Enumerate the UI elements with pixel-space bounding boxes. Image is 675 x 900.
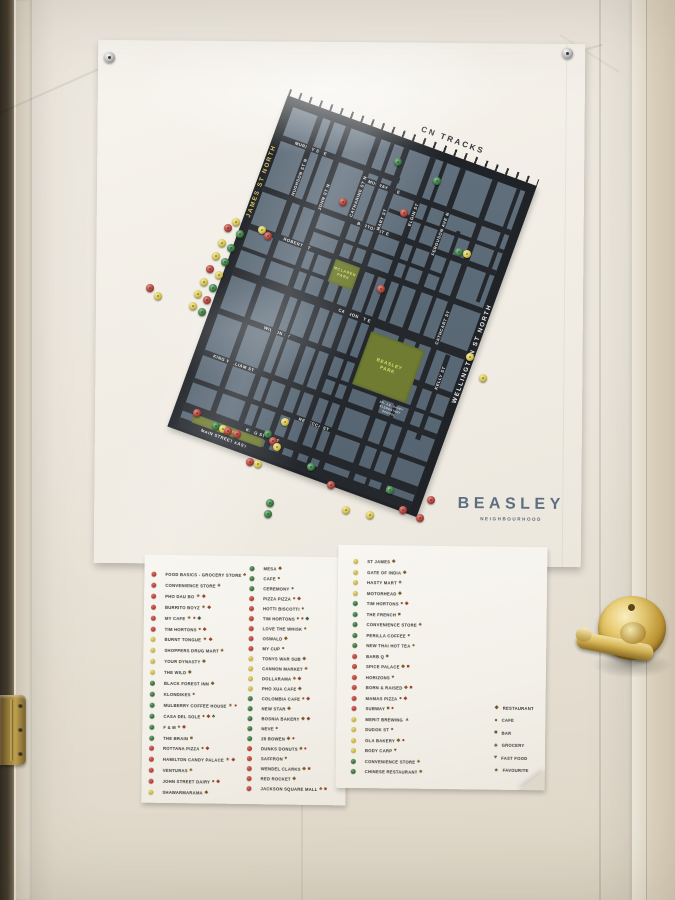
door-panel-line [599,0,601,900]
legend-dot [247,766,252,771]
legend-item: ROTTANA PIZZA●◆ [149,746,209,752]
legend-dot [247,756,252,761]
legend-item: PHO DAU BO★◆ [151,593,206,599]
photo-of-door-with-map: { "poster": { "title": "BEASLEY", "subti… [0,0,675,900]
thumbtack-right [562,48,573,59]
legend-item: MESA◆ [250,566,283,571]
legend-item-icon: ◆ [297,677,301,682]
legend-item-label: TIM HORTONS [165,626,197,631]
legend-item-icon: ◆ [182,725,186,730]
legend-dot [353,580,358,585]
legend-item-label: HOTTI BISCOTTI [263,606,300,612]
poster-title: BEASLEY [446,495,576,514]
legend-item-icon: ♣ [212,714,215,719]
legend-item-label: ST JAMES [367,559,390,564]
legend-key-item: ♣GROCERY [494,742,524,748]
legend-item: ST JAMES◆ [353,559,395,565]
street-name: MARY ST [375,208,388,231]
legend-item: CONVENIENCE STORE♣ [351,758,420,764]
legend-dot [246,786,251,791]
legend-dot [247,746,252,751]
legend-key-label: GROCERY [502,743,525,748]
legend-key-label: FAVOURITE [503,768,529,773]
legend-item-label: MULBERRY COFFEE HOUSE [164,703,227,709]
legend-dot [150,692,155,697]
legend-item-icon: ◆ [403,570,407,575]
legend-item-icon: ● [304,747,307,752]
legend-item: TIM HORTONS●◆ [151,626,207,632]
legend-item-icon: ● [234,704,237,709]
legend-dot [352,674,357,679]
legend-item: CONVENIENCE STORE♣ [151,583,220,589]
legend-item-icon: ◆ [204,790,208,795]
street-name: KELLY ST [433,365,446,390]
legend-item-label: ROTTANA PIZZA [163,746,200,752]
legend-item-icon: ◆ [278,566,282,571]
legend-item-label: JACKSON SQUARE MALL [260,786,317,792]
legend-item-label: THE FRENCH [367,612,397,617]
legend-item-icon: ◆ [284,637,288,642]
legend-key-item: ★FAVOURITE [494,767,529,773]
legend-item-icon: ● [302,697,305,702]
hinge-screw [18,703,23,708]
legend-dot [150,702,155,707]
legend-item-label: PHO XUA CAFE [262,686,297,691]
legend-item-icon: ◆ [302,767,306,772]
legend-item: SUBWAY■● [351,706,394,712]
legend-dot [351,737,356,742]
legend-key-label: BAR [502,730,512,735]
legend-item-label: SHAWARMARAMA [162,790,203,796]
legend-dot [250,566,255,571]
legend-item: YOUR DYNASTY◆ [150,659,206,665]
legend-item-label: MESA [264,566,277,571]
legend-item-icon: ● [291,587,294,592]
legend-item: LOVE THE WHISK● [249,626,307,632]
legend-item-label: OLA BAKERY [365,738,395,743]
legend-item-icon: ◆ [305,617,309,622]
legend-item-icon: ● [399,696,402,701]
legend-item-label: TONYS WAR SUB [262,656,301,662]
legend-item: NEVE● [247,726,278,731]
legend-item-icon: ● [407,633,410,638]
legend-item-icon: ◆ [203,627,207,632]
legend-item: HOTTI BISCOTTI● [249,606,304,612]
legend-item: BOSNIA BAKERY◆◆ [247,716,310,722]
street-name: CATHCART ST [433,309,450,345]
legend-item-icon: ♥ [284,757,287,762]
legend-item-label: THE WILD [164,670,186,675]
legend-item-icon: ♣ [304,667,307,672]
legend-item: THE WILD◆ [150,670,192,676]
legend-item-label: THE BRAIN [163,735,188,740]
legend-dot [353,569,358,574]
legend-item-icon: ♣ [217,583,220,588]
hinge-screw [18,727,23,732]
legend-item-label: SUBWAY [365,706,385,711]
legend-item: MY CAFE★●◆ [151,615,201,621]
legend-item-label: COLOMBIA CAFE [262,696,301,702]
legend-item-icon: ■ [324,787,327,792]
legend-dot [150,659,155,664]
poster-subtitle: NEIGHBOURHOOD [446,516,576,522]
legend-item-icon: ♣ [293,677,296,682]
legend-dot [352,632,357,637]
legend-item-label: NEW THAI HOT TEA [366,643,410,649]
legend-item-label: BARB Q [366,654,384,659]
legend-sheet-right: ST JAMES◆GATE OF INDIA◆HASTY MART♣MOTORH… [336,545,548,791]
legend-item-label: GATE OF INDIA [367,570,401,575]
legend-dot [247,726,252,731]
legend-item-label: WENDEL CLARKS [261,766,301,772]
legend-item-icon: ● [391,727,394,732]
door-hinge [0,695,26,765]
legend-item: MULBERRY COFFEE HOUSE★● [150,702,238,708]
street-vertical: ELGIN ST [316,157,436,473]
legend-item-label: BOSNIA BAKERY [261,716,299,722]
legend-key-icon: ♥ [494,755,497,761]
legend-dot [353,601,358,606]
legend-item-icon: ● [202,714,205,719]
legend-item-icon: ★ [196,594,201,599]
legend-dot [247,776,252,781]
legend-item-icon: ◆ [401,665,405,670]
legend-item: SAFFRON♥ [247,756,288,762]
legend-item-icon: ● [304,627,307,632]
legend-item-label: RED ROCKET [261,776,291,781]
legend-dot [249,616,254,621]
legend-dot [151,615,156,620]
legend-item-icon: ◆ [298,687,302,692]
legend-item: CHINESE RESTAURANT■ [351,769,422,775]
legend-item-icon: ♣ [220,649,223,654]
legend-dot [249,606,254,611]
legend-item-icon: ● [177,725,180,730]
legend-item-label: HASTY MART [367,580,397,585]
legend-item: OSWALD◆ [249,636,288,642]
legend-item: TIM HORTONS●●◆ [249,616,309,622]
legend-item: BODY CARP♥ [351,748,397,754]
door-right-stile [632,0,646,900]
legend-item: PIZZA PIZZA●◆ [249,596,301,602]
legend-item-icon: ◆ [206,714,210,719]
street-name: ELGIN ST [406,202,419,226]
legend-item: 28 BOWEN◆● [247,736,295,742]
legend-item-icon: ■ [406,665,409,670]
legend-item: BORN & RAISED◆■ [352,685,413,691]
legend-item-icon: ◆ [188,670,192,675]
legend-item-label: CONVENIENCE STORE [165,583,216,589]
legend-item-icon: ◆ [302,657,306,662]
legend-item-icon: ■ [308,767,311,772]
handle-screw [628,604,635,611]
thumbtack-left [104,52,115,63]
legend-item: CONVENIENCE STORE♣ [352,622,421,628]
legend-dot [149,735,154,740]
legend-item-icon: ◆ [403,696,407,701]
legend-key-item: ♥FAST FOOD [494,755,528,761]
legend-key-icon: ◆ [494,705,498,711]
legend-item-icon: ◆ [231,758,235,763]
legend-item-label: OSWALD [263,636,283,641]
legend-item-label: CHINESE RESTAURANT [365,769,418,775]
legend-item: HASTY MART♣ [353,580,402,586]
legend-item-label: MY CUP [262,646,280,651]
legend-item: NEW STAR◆ [248,706,291,712]
legend-item-icon: ♣ [398,580,401,585]
street-name: JOHN ST N [316,183,330,211]
legend-dot [248,676,253,681]
legend-item-icon: ◆ [306,717,310,722]
legend-dot [249,636,254,641]
street-vertical: CATHARINE ST N [262,137,382,453]
legend-item-label: YOUR DYNASTY [164,659,200,665]
legend-dot [351,748,356,753]
legend-item-icon: ■ [398,612,401,617]
legend-dot [248,666,253,671]
legend-item-icon: ★ [228,704,233,709]
legend-dot [151,583,156,588]
legend-item: SHAWARMARAMA◆ [148,790,208,796]
legend-dot [249,596,254,601]
legend-item-label: BURNT TONGUE [165,637,202,643]
legend-sheet-left: FOOD BASICS - GROCERY STORE♣CONVENIENCE … [141,555,348,806]
legend-item-icon: ■ [419,770,422,775]
legend-dot [151,572,156,577]
legend-item-icon: ◆ [292,777,296,782]
legend-item-label: KLONDIKES [164,692,191,697]
legend-item-label: BURRITO BOYZ [165,605,200,610]
legend-item: KLONDIKES● [150,692,196,698]
legend-dot [151,604,156,609]
legend-item-icon: ● [275,726,278,731]
legend-dot [249,626,254,631]
legend-key-icon: ★ [494,767,499,773]
legend-item: CASA DEL SOLE●◆♣ [149,713,215,719]
legend-item-label: HAMILTON CANDY PALACE [163,757,224,763]
legend-dot [149,757,154,762]
street-vertical: KELLY ST [415,354,450,440]
legend-item-label: DUNKS DONUTS [261,746,298,752]
legend-key-label: CAFE [502,718,514,723]
legend-item-label: LOVE THE WHISK [263,626,303,632]
legend-item-icon: ♥ [391,675,394,680]
legend-item-icon: ◆ [197,616,201,621]
legend-item: OLA BAKERY◆● [351,737,405,743]
legend-item: COLOMBIA CAFE●◆ [248,696,310,702]
legend-item-icon: ♣ [189,768,192,773]
legend-item-icon: ● [293,597,296,602]
legend-item-icon: ● [292,737,295,742]
legend-dot [249,576,254,581]
legend-dot [149,713,154,718]
legend-dot [353,590,358,595]
legend-item-icon: ◆ [301,717,305,722]
legend-item-icon: ★ [201,605,206,610]
legend-item-icon: ◆ [404,686,408,691]
legend-dot [151,626,156,631]
legend-item: BURRITO BOYZ★◆ [151,604,211,610]
legend-item-icon: ● [282,647,285,652]
legend-item-label: F & M [163,724,176,729]
legend-item-label: SPICE PALACE [366,664,400,669]
legend-dot [351,769,356,774]
legend-item: TIM HORTONS●◆ [353,601,409,607]
legend-item-icon: ● [391,706,394,711]
legend-dot [351,706,356,711]
legend-item-label: JOHN STREET DAIRY [163,779,211,785]
legend-dot [151,637,156,642]
legend-item: RED ROCKET◆ [247,776,297,782]
legend-item-label: MERIT BREWING [365,717,403,722]
legend-item: CANNON MARKET♣ [248,666,308,672]
map-inner: MURRAY ST EMURRAY ST EBARTON ST EROBERT … [179,107,525,505]
legend-dot [149,746,154,751]
legend-item: CAFE● [249,576,280,581]
legend-item-icon: ◆ [211,682,215,687]
legend-item-label: PIZZA PIZZA [263,596,291,601]
legend-item: F & M●◆ [149,724,186,730]
legend-dot [248,686,253,691]
legend-item-icon: ● [193,616,196,621]
legend-dot [351,716,356,721]
legend-dot [149,724,154,729]
legend-item-icon: ◆ [306,697,310,702]
legend-item: MOTORHEAD◆ [353,590,402,596]
plastic-sleeve-edge [562,44,568,567]
legend-item-label: 28 BOWEN [261,736,285,741]
legend-dot [150,648,155,653]
legend-item-icon: ■ [386,654,389,659]
legend-item-label: MOTORHEAD [367,591,397,596]
legend-item-icon: ● [301,617,304,622]
legend-item: MY CUP● [248,646,284,652]
legend-item-icon: ★ [225,758,230,763]
legend-dot [353,559,358,564]
legend-dot [351,727,356,732]
legend-dot [247,716,252,721]
legend-item: GATE OF INDIA◆ [353,569,407,575]
legend-item: TONYS WAR SUB◆ [248,656,306,662]
legend-item-icon: ■ [386,706,389,711]
legend-item-icon: ● [201,747,204,752]
legend-item-label: BLACK FOREST INN [164,681,209,687]
legend-item-label: DOLLARAMA [262,676,291,681]
legend-item-label: NEW STAR [262,706,286,711]
legend-item: CEREMONY● [249,586,294,592]
legend-item: SPICE PALACE◆■ [352,664,410,670]
legend-item: PHO XUA CAFE◆ [248,686,302,692]
legend-item-label: MY CAFE [165,615,186,620]
legend-item-icon: ♥ [394,748,397,753]
legend-item: PERILLA COFFEE● [352,632,410,638]
door-frame-gap [0,0,14,900]
legend-dot [247,736,252,741]
legend-dot [352,643,357,648]
legend-dot [352,685,357,690]
legend-item-icon: ▲ [405,717,410,722]
legend-key-icon: ● [494,717,497,723]
legend-dot [248,706,253,711]
legend-dot [150,670,155,675]
hinge-screw [18,751,23,756]
legend-item-icon: ● [212,780,215,785]
legend-dot [353,611,358,616]
legend-dot [150,681,155,686]
legend-item: MERIT BREWING▲ [351,716,409,722]
legend-item-icon: ♣ [243,573,246,578]
legend-item-icon: ★ [203,638,208,643]
legend-item-icon: ● [198,627,201,632]
legend-item-icon: ■ [299,747,302,752]
legend-item-icon: ◆ [396,738,400,743]
legend-item: THE BRAIN■ [149,735,193,741]
legend-item-icon: ♣ [417,759,420,764]
legend-item-label: CEREMONY [263,586,289,591]
door-left-stile [16,0,32,900]
legend-item-label: TIM HORTONS [263,616,295,621]
legend-item: BURNT TONGUE★◆ [151,637,213,643]
legend-item-label: CAFE [263,576,275,581]
legend-item-icon: ◆ [297,597,301,602]
legend-item-label: SHOPPERS DRUG MART [164,648,219,654]
legend-item: VENTURAS♣ [149,768,193,774]
legend-dot [352,695,357,700]
legend-dot [151,593,156,598]
legend-item: DOLLARAMA♣◆ [248,676,301,682]
legend-item-icon: ◆ [287,737,291,742]
legend-item-label: SAFFRON [261,756,283,761]
legend-dot [352,622,357,627]
legend-item-label: PERILLA COFFEE [366,633,405,638]
legend-item: HAMILTON CANDY PALACE★◆ [149,757,235,763]
legend-dot [248,646,253,651]
legend-item-icon: ● [400,601,403,606]
legend-item: SHOPPERS DRUG MART♣ [150,648,223,654]
legend-item: NEW THAI HOT TEA● [352,643,415,649]
legend-item-icon: ◆ [202,660,206,665]
door-right-edge [646,0,675,900]
legend-dot [248,656,253,661]
legend-item-label: CONVENIENCE STORE [366,622,417,628]
legend-item-label: CANNON MARKET [262,666,303,672]
legend-dot [352,664,357,669]
legend-item-icon: ● [412,644,415,649]
legend-key-item: ■BAR [494,730,511,736]
legend-item-icon: ◆ [207,605,211,610]
legend-item-icon: ◆ [206,747,210,752]
legend-key-label: FAST FOOD [501,755,527,760]
legend-item-icon: ■ [409,686,412,691]
legend-key-item: ●CAFE [494,717,514,723]
legend-item-label: CASA DEL SOLE [163,714,200,720]
legend-key-icon: ■ [494,730,497,736]
legend-dot [352,653,357,658]
legend-item-label: TIM HORTONS [367,601,399,606]
legend-item: DUNKS DONUTS■● [247,746,307,752]
legend-item-icon: ♣ [418,623,421,628]
legend-item-label: BORN & RAISED [366,685,403,690]
legend-dot [149,768,154,773]
legend-key-icon: ♣ [494,742,498,748]
legend-item-icon: ◆ [392,559,396,564]
legend-item: HORIZONS♥ [352,674,395,680]
legend-item: BLACK FOREST INN◆ [150,681,215,687]
legend-dot [351,758,356,763]
legend-item-icon: ● [402,738,405,743]
legend-item: BARB Q■ [352,653,389,658]
legend-item-icon: ◆ [216,780,220,785]
